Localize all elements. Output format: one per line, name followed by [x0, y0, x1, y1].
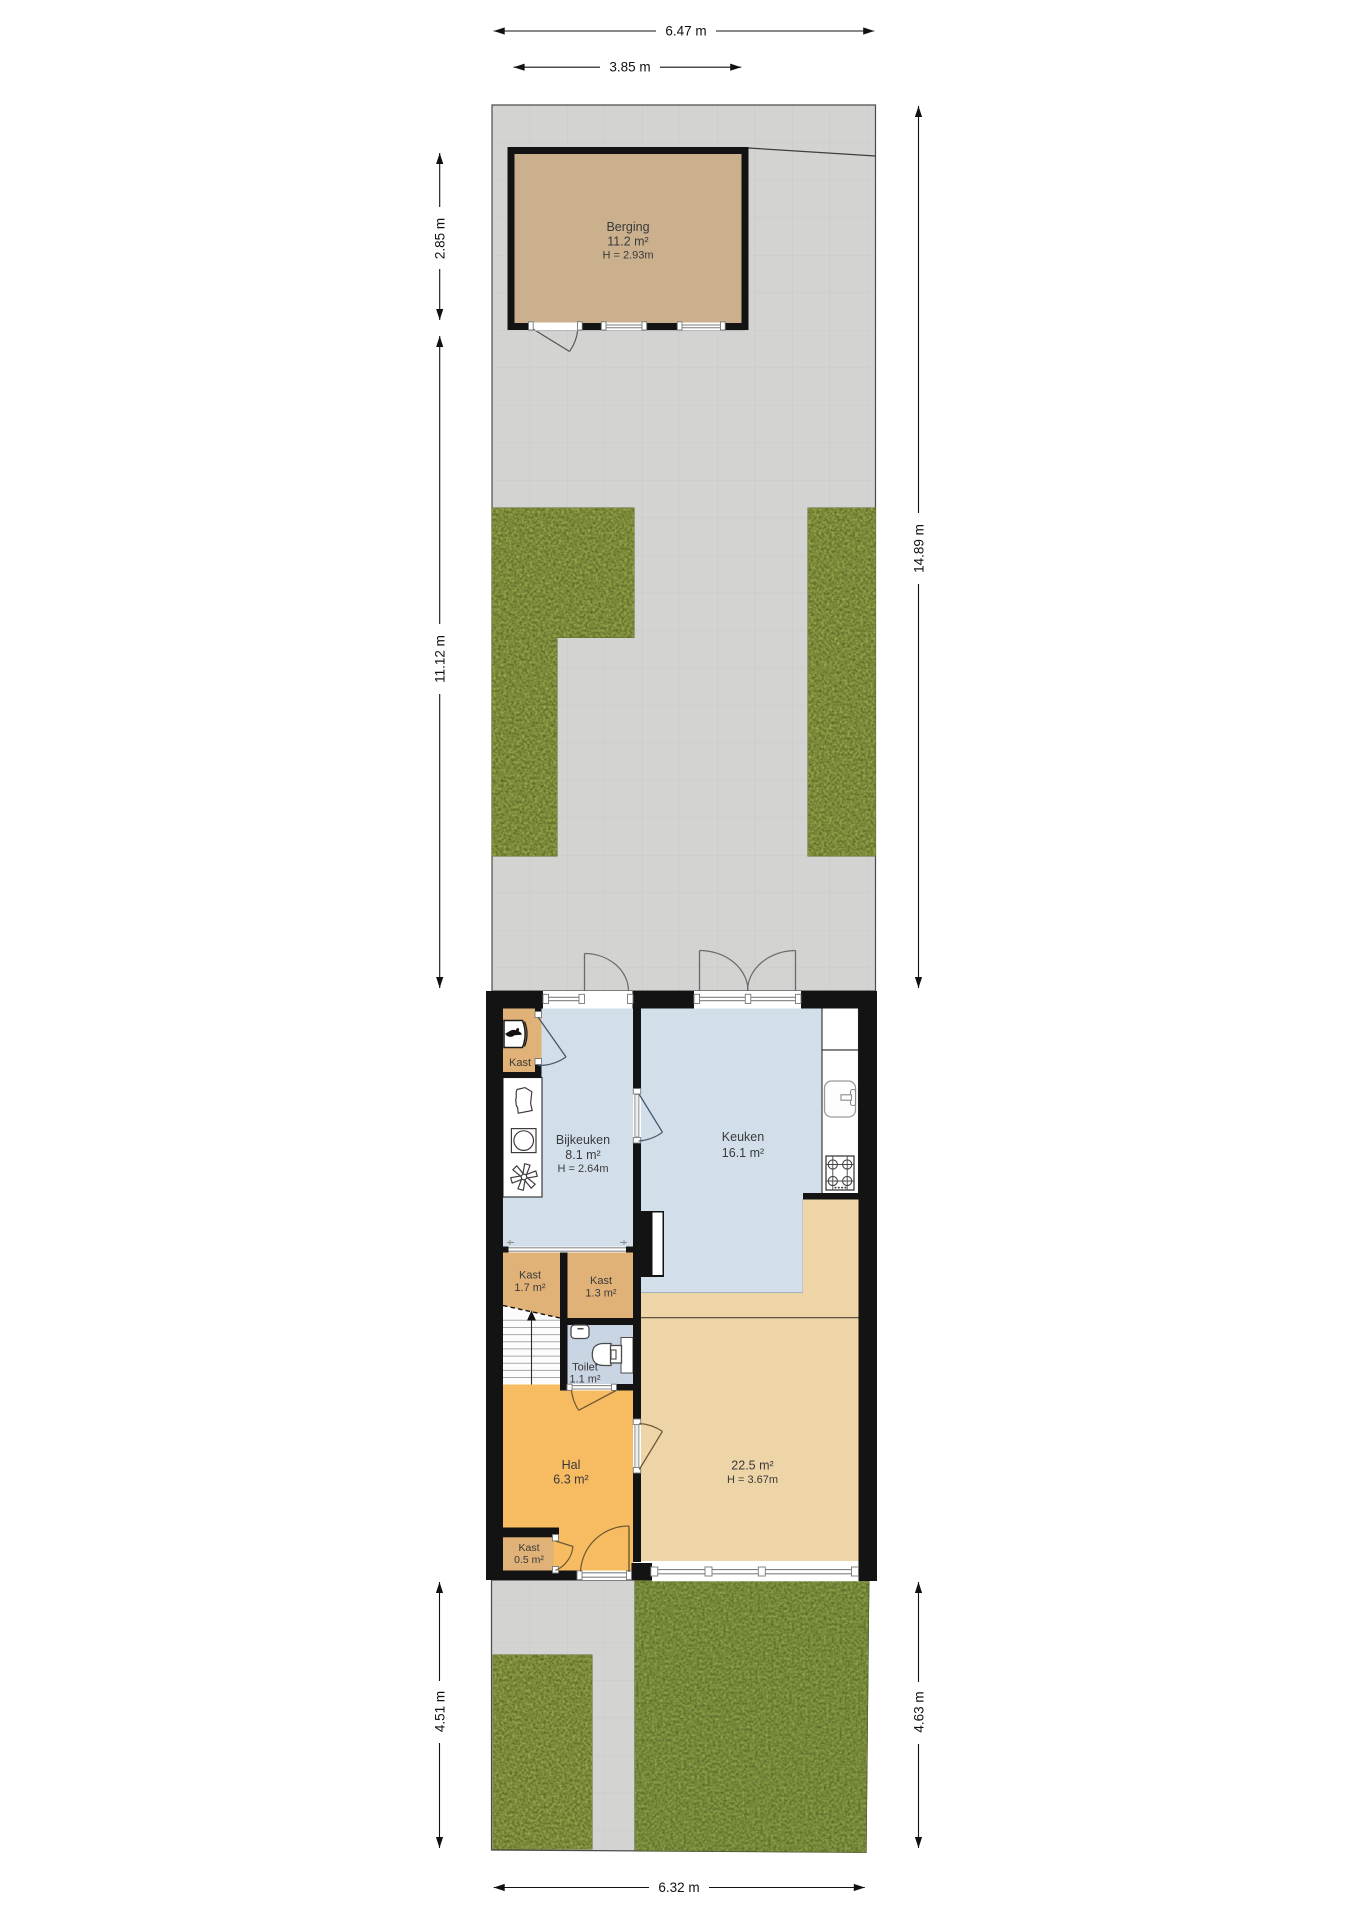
svg-text:1.3 m²: 1.3 m² — [585, 1288, 617, 1300]
svg-text:11.12 m: 11.12 m — [433, 635, 448, 683]
svg-text:1.1 m²: 1.1 m² — [569, 1374, 601, 1386]
svg-text:4.63 m: 4.63 m — [911, 1691, 926, 1732]
svg-text:Toilet: Toilet — [572, 1362, 598, 1374]
svg-text:6.32 m: 6.32 m — [658, 1880, 699, 1895]
svg-text:22.5 m²: 22.5 m² — [731, 1459, 773, 1473]
svg-text:4.51 m: 4.51 m — [432, 1691, 447, 1732]
svg-text:3.85 m: 3.85 m — [609, 60, 650, 75]
svg-text:1.7 m²: 1.7 m² — [514, 1282, 546, 1294]
svg-text:Berging: Berging — [606, 220, 649, 234]
svg-text:Kast: Kast — [590, 1275, 612, 1287]
svg-text:Kast: Kast — [509, 1057, 531, 1069]
svg-text:Hal: Hal — [562, 1458, 581, 1472]
svg-text:8.1 m²: 8.1 m² — [565, 1148, 600, 1162]
svg-text:H = 2.93m: H = 2.93m — [602, 250, 653, 262]
svg-text:6.3 m²: 6.3 m² — [553, 1473, 588, 1487]
svg-text:14.89 m: 14.89 m — [911, 524, 926, 573]
svg-text:H = 2.64m: H = 2.64m — [557, 1163, 608, 1175]
svg-text:Bijkeuken: Bijkeuken — [556, 1133, 610, 1147]
svg-text:11.2 m²: 11.2 m² — [607, 235, 648, 249]
svg-text:Kast: Kast — [518, 1542, 539, 1554]
svg-text:H = 3.67m: H = 3.67m — [727, 1474, 778, 1486]
svg-text:0.5 m²: 0.5 m² — [514, 1554, 544, 1566]
svg-text:16.1 m²: 16.1 m² — [722, 1146, 764, 1160]
svg-text:6.47 m: 6.47 m — [665, 24, 706, 39]
svg-text:Kast: Kast — [519, 1270, 541, 1282]
svg-text:Keuken: Keuken — [722, 1130, 764, 1144]
svg-text:2.85 m: 2.85 m — [433, 218, 448, 259]
